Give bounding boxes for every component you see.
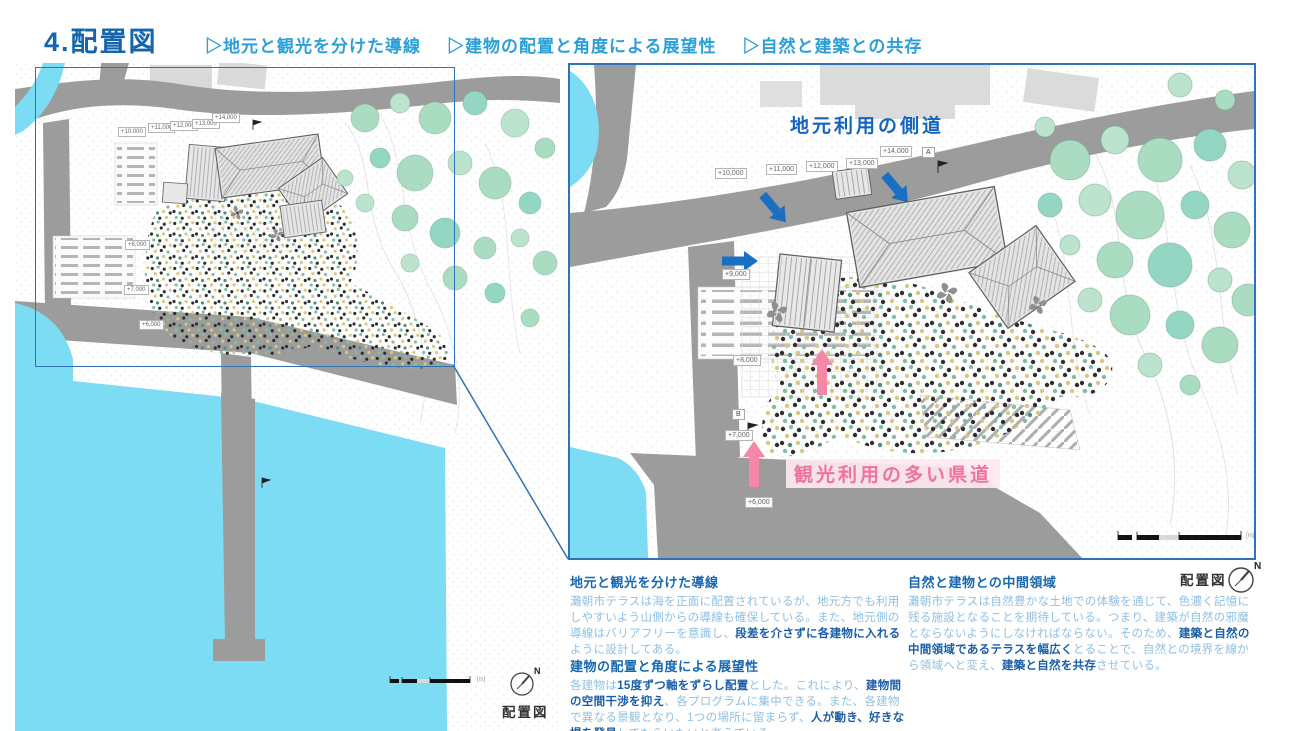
page-title: 4.配置図: [44, 20, 158, 59]
scale-unit-label: [m]: [1246, 533, 1254, 539]
elevation-label: +11,000: [766, 164, 797, 175]
elevation-label: +13,000: [846, 158, 878, 169]
elevation-label: +14,000: [880, 146, 912, 157]
elevation-label: +9,000: [722, 269, 750, 280]
section-nature-building-zone: 自然と建物との中間領域 灘朝市テラスは自然豊かな土地での体験を通じて、色濃く記憶…: [908, 572, 1260, 674]
site-marker-a: A: [922, 147, 935, 158]
section-heading: 自然と建物との中間領域: [908, 572, 1260, 591]
section-local-tourist-flow: 地元と観光を分けた導線 灘朝市テラスは海を正面に配置されているが、地元方でも利用…: [570, 572, 910, 658]
site-marker-b: B: [732, 409, 745, 420]
section-heading: 地元と観光を分けた導線: [570, 572, 910, 591]
elevation-label: +7,000: [725, 430, 753, 441]
elevation-label: +6,000: [745, 497, 773, 508]
section-body: 各建物は15度ずつ軸をずらし配置とした。これにより、建物間の空間干渉を抑え、各プ…: [570, 678, 910, 731]
map-caption: 配置図: [502, 701, 549, 721]
subtitle-bullets: ▷地元と観光を分けた導線▷建物の配置と角度による展望性▷自然と建築との共存: [205, 32, 948, 57]
bullet-item: ▷自然と建築との共存: [743, 37, 923, 56]
scale-unit-label: [m]: [477, 677, 485, 683]
section-body: 灘朝市テラスは自然豊かな土地での体験を通じて、色濃く記憶に残る施設となることを期…: [908, 594, 1260, 674]
elevation-label: +12,000: [806, 161, 838, 172]
right-site-plan-figure: +10,000 +11,000 +12,000 +13,000 +14,000 …: [568, 63, 1256, 560]
section-body: 灘朝市テラスは海を正面に配置されているが、地元方でも利用しやすいよう山側からの導…: [570, 594, 910, 658]
bullet-item: ▷建物の配置と角度による展望性: [447, 37, 717, 56]
bullet-item: ▷地元と観光を分けた導線: [205, 37, 421, 56]
elevation-label: +8,000: [733, 355, 761, 366]
section-building-angle-views: 建物の配置と角度による展望性 各建物は15度ずつ軸をずらし配置とした。これにより…: [570, 656, 910, 731]
compass-north-label: N: [534, 666, 541, 676]
tourist-road-annotation: 観光利用の多い県道: [786, 459, 1000, 488]
elevation-label: +10,000: [715, 168, 747, 179]
detail-selection-rectangle: [35, 67, 455, 367]
section-heading: 建物の配置と角度による展望性: [570, 656, 910, 675]
presentation-page: 4.配置図 ▷地元と観光を分けた導線▷建物の配置と角度による展望性▷自然と建築と…: [0, 0, 1300, 731]
compass-north-label: N: [1254, 561, 1261, 572]
local-road-annotation: 地元利用の側道: [790, 111, 944, 138]
